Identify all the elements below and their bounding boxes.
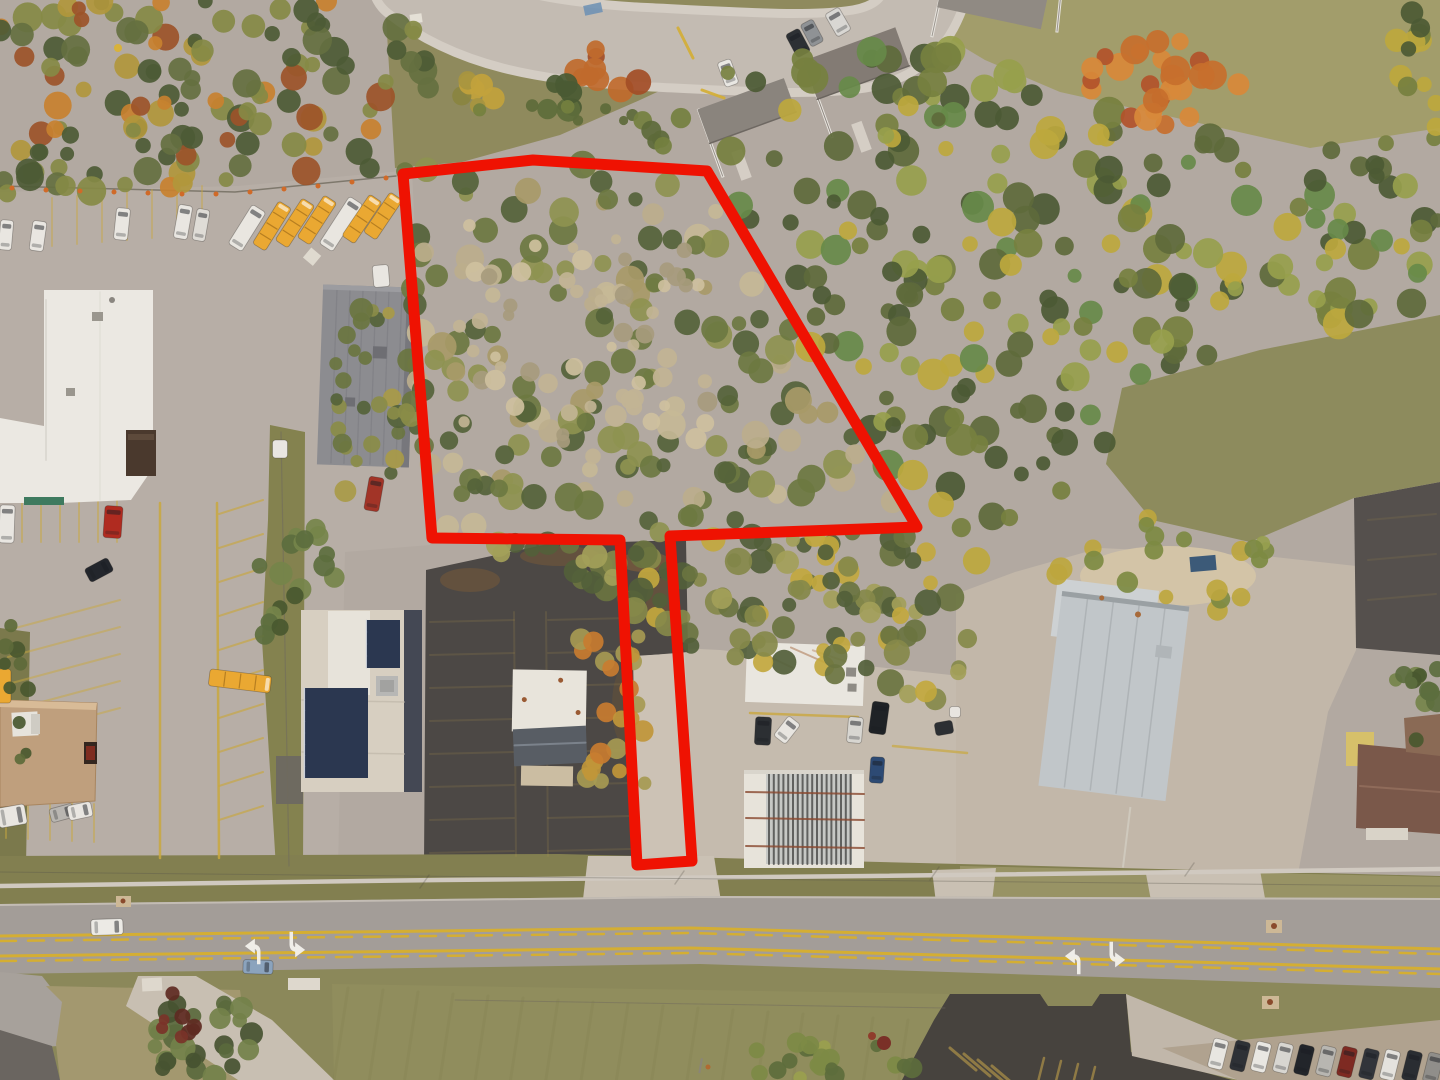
sign-pad-dot (706, 1065, 711, 1070)
aerial-photo-scene (0, 0, 1440, 1080)
red-bush-small (868, 1032, 876, 1040)
leaf-stain-1 (440, 568, 500, 592)
util-dot-2 (1267, 999, 1273, 1005)
fence-marker (248, 190, 253, 195)
fence-marker (282, 187, 287, 192)
white-van-lot (0, 505, 15, 544)
fence-marker (112, 190, 117, 195)
white-van-3 (113, 207, 130, 240)
fence-marker (146, 191, 151, 196)
blue-dumpster (1189, 555, 1216, 572)
red-car (103, 505, 123, 538)
road-white-van (91, 918, 124, 935)
big-field (332, 984, 950, 1080)
dark-patch (276, 756, 303, 804)
mid-dark-2 (934, 720, 954, 736)
fence-marker (214, 192, 219, 197)
mid-white-2 (950, 707, 961, 718)
striped-building (744, 770, 864, 868)
white-pad-1 (142, 977, 163, 991)
fence-marker (384, 176, 389, 181)
white-van-mid (273, 440, 288, 458)
aerial-photo-stage (0, 0, 1440, 1080)
fence-marker (316, 184, 321, 189)
fence-marker (10, 186, 15, 191)
mid-dark-car (754, 717, 771, 746)
fence-marker (78, 189, 83, 194)
util-dot-1 (1271, 923, 1277, 929)
fence-marker (180, 192, 185, 197)
metal-building (1032, 578, 1190, 801)
solar-building (301, 610, 422, 792)
tan-building (0, 700, 97, 807)
white-van-1 (0, 219, 14, 250)
white-pad-2 (288, 978, 320, 990)
util-dot-3 (121, 899, 126, 904)
mid-blue-car (869, 757, 885, 784)
white-van-garage (372, 264, 390, 287)
top-right-dark-lot (1354, 482, 1440, 655)
red-bush-small (877, 1036, 891, 1050)
fence-marker (44, 188, 49, 193)
yellow-sign (114, 44, 122, 52)
mid-silver-car (846, 716, 863, 743)
fence-marker (350, 180, 355, 185)
